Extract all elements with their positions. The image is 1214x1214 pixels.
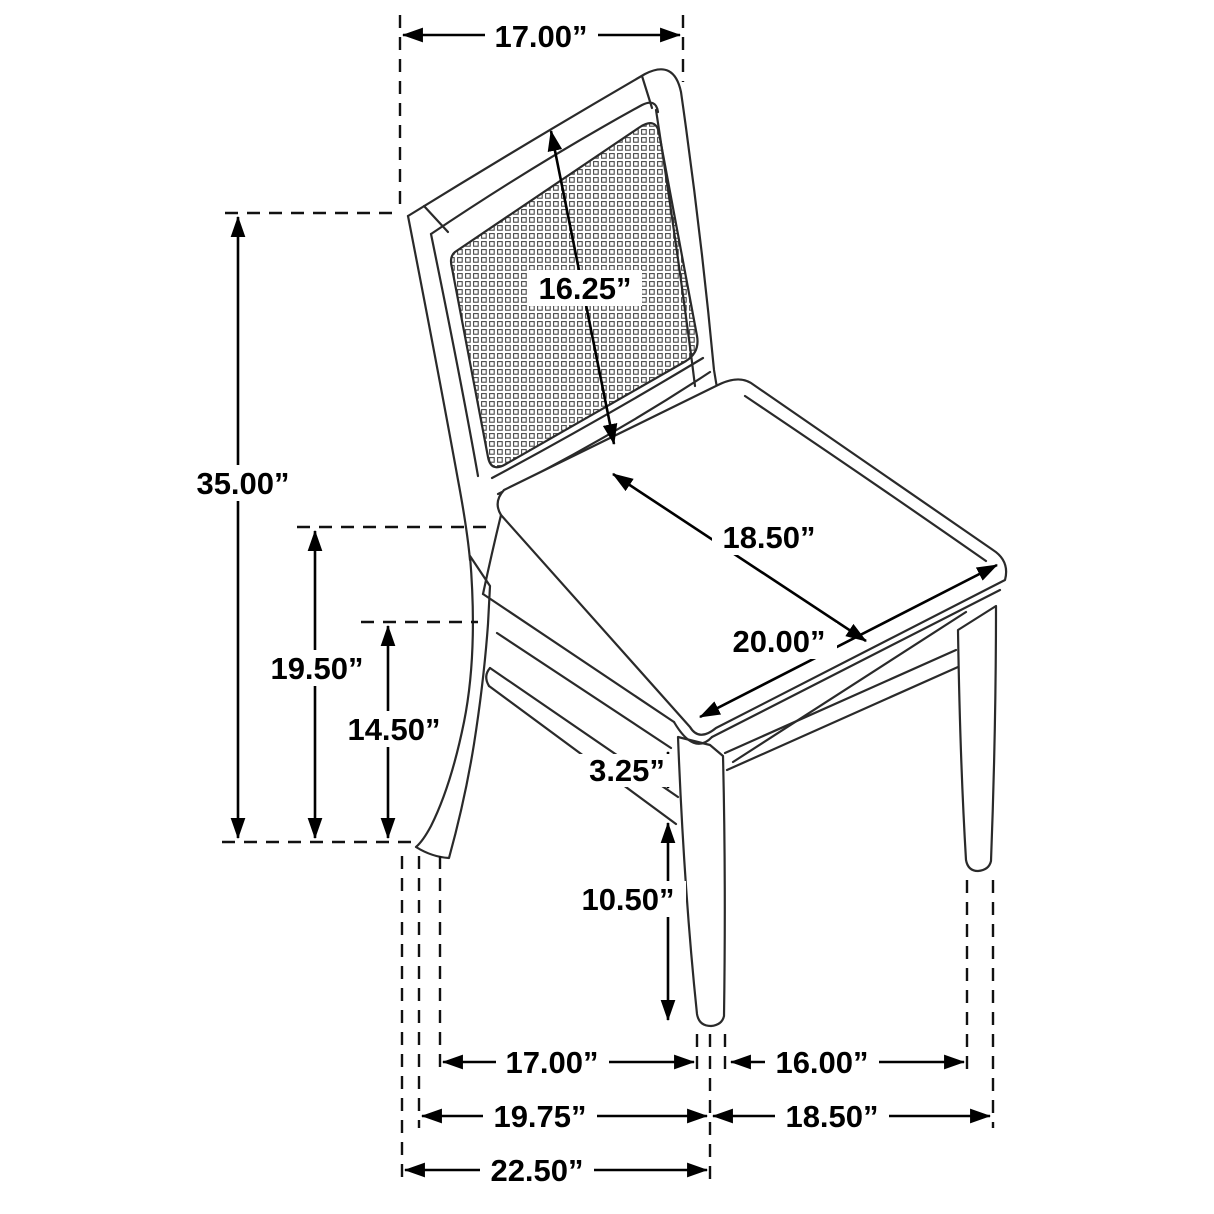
rear-left-leg: [416, 556, 490, 858]
dim-label-seat-back-height: 19.50”: [270, 651, 363, 686]
right-leg: [958, 606, 996, 871]
dim-label-base-depth-right: 18.50”: [785, 1099, 878, 1134]
dimension-diagram-canvas: 17.00” 35.00” 16.25” 19.50” 14.50” 18.50…: [0, 0, 1214, 1214]
chair-dimension-diagram: 17.00” 35.00” 16.25” 19.50” 14.50” 18.50…: [0, 0, 1214, 1214]
dim-label-back-width: 17.00”: [494, 19, 587, 54]
chair-line-art: [408, 69, 1006, 1026]
dim-label-backrest-diagonal: 16.25”: [538, 271, 631, 306]
dim-label-overall-base-width: 22.50”: [490, 1153, 583, 1188]
dim-label-front-leg-spacing: 17.00”: [505, 1045, 598, 1080]
dim-label-stretcher-gap: 3.25”: [589, 753, 665, 788]
dim-label-base-width-left: 19.75”: [493, 1099, 586, 1134]
left-stretcher: [486, 668, 678, 824]
dim-label-floor-clearance: 10.50”: [581, 882, 674, 917]
dim-label-seat-width: 20.00”: [732, 624, 825, 659]
dim-label-side-leg-spacing: 16.00”: [775, 1045, 868, 1080]
dim-label-apron-height: 14.50”: [347, 712, 440, 747]
dim-label-overall-height: 35.00”: [196, 466, 289, 501]
dim-label-seat-depth: 18.50”: [722, 520, 815, 555]
